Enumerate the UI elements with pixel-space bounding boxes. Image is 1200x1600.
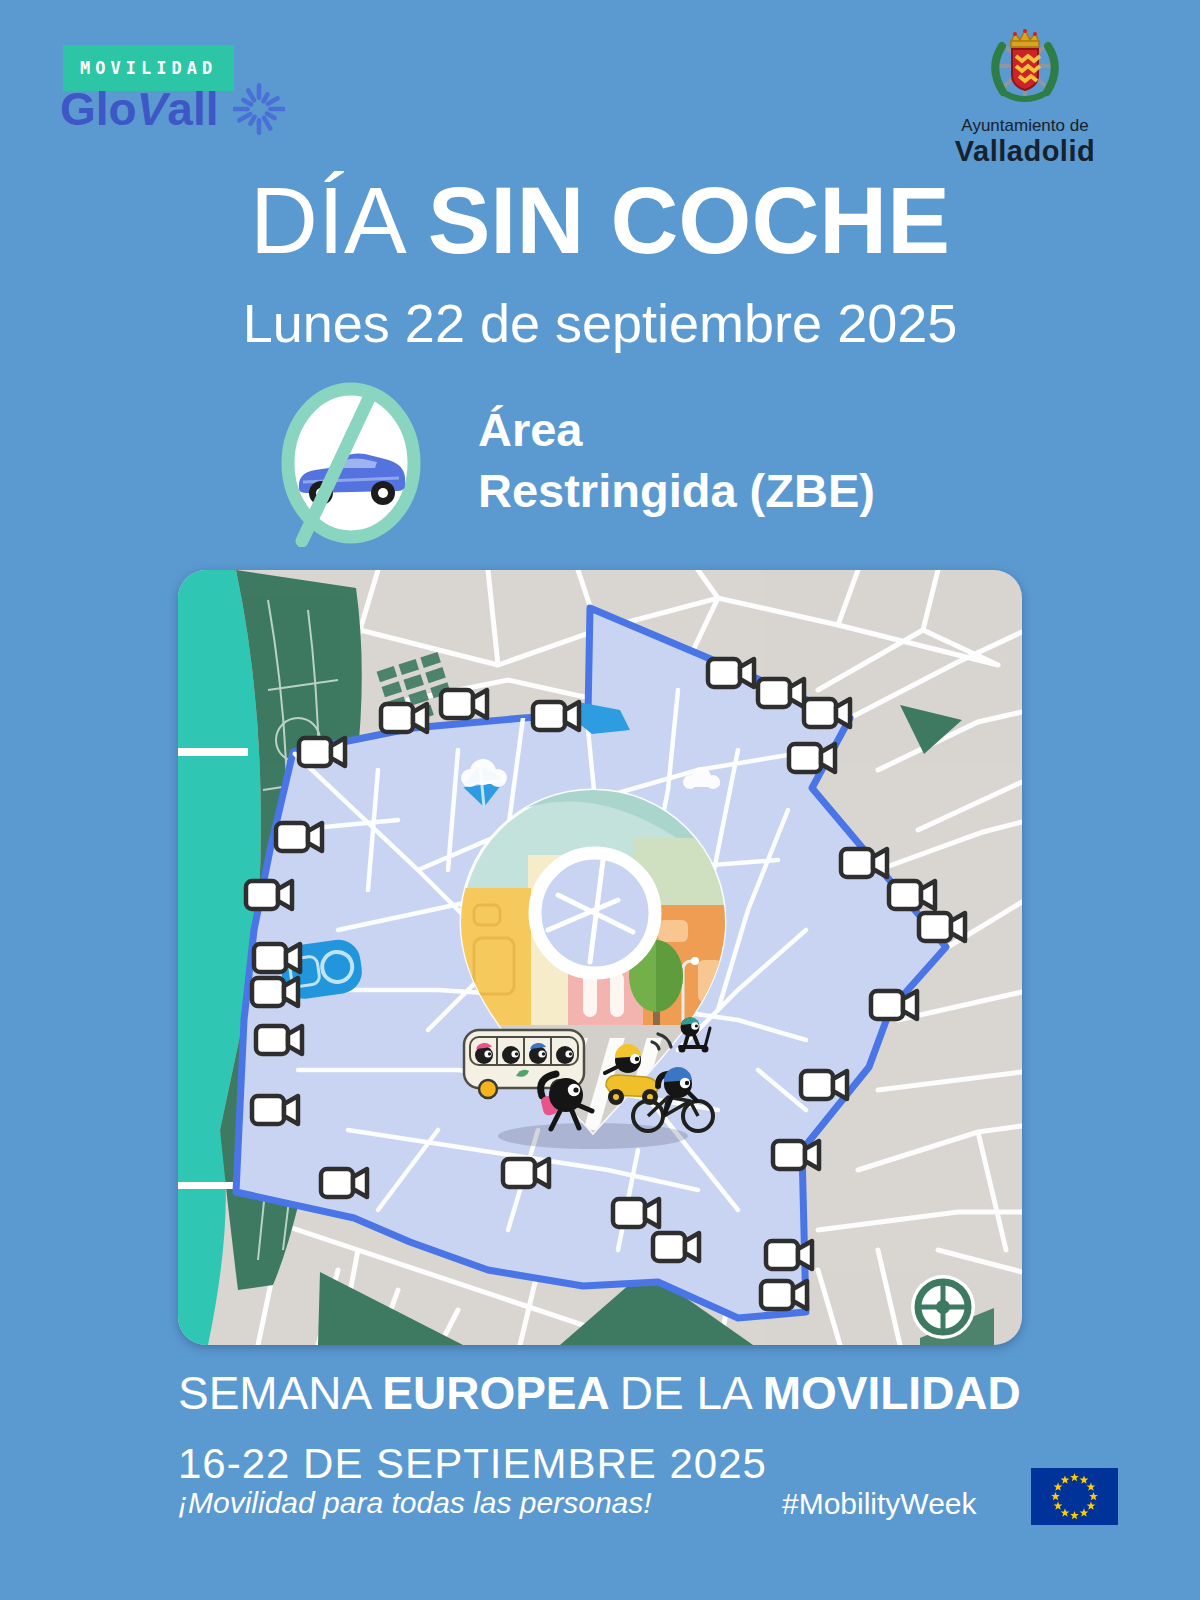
org-name-line2: Valladolid: [925, 135, 1125, 168]
no-car-icon: [279, 381, 423, 551]
hashtag: #MobilityWeek: [782, 1487, 977, 1521]
video-camera-icon: [801, 1071, 847, 1099]
video-camera-icon: [441, 690, 487, 718]
video-camera-icon: [613, 1199, 659, 1227]
glovall-logo: GloVall: [60, 82, 285, 136]
video-camera-icon: [299, 738, 345, 766]
bridge: [178, 1182, 242, 1189]
video-camera-icon: [766, 1241, 812, 1269]
valladolid-logo: Ayuntamiento de Valladolid: [925, 26, 1125, 168]
video-camera-icon: [276, 823, 322, 851]
glovall-wordmark: GloVall: [60, 82, 219, 136]
mobility-week-title: SEMANAEUROPEADE LAMOVILIDAD: [178, 1366, 1031, 1420]
video-camera-icon: [252, 1096, 298, 1124]
video-camera-icon: [653, 1233, 699, 1261]
video-camera-icon: [889, 881, 935, 909]
pin-hole: [535, 853, 655, 973]
video-camera-icon: [252, 978, 298, 1006]
org-name-line1: Ayuntamiento de: [925, 116, 1125, 136]
video-camera-icon: [758, 679, 804, 707]
page-title: DÍA SIN COCHE: [0, 172, 1200, 271]
video-camera-icon: [871, 991, 917, 1019]
video-camera-icon: [773, 1141, 819, 1169]
mobility-week-tagline: ¡Movilidad para todas las personas!: [178, 1486, 652, 1520]
video-camera-icon: [246, 881, 292, 909]
valladolid-coat-of-arms: [986, 26, 1064, 108]
video-camera-icon: [381, 704, 427, 732]
city-map: [178, 570, 1022, 1345]
restricted-area-label: Área Restringida (ZBE): [478, 399, 875, 521]
video-camera-icon: [804, 699, 850, 727]
bridge: [178, 748, 248, 756]
zbe-map: [178, 570, 1022, 1345]
mobility-week-dates: 16-22 DE SEPTIEMBRE 2025: [178, 1440, 767, 1488]
video-camera-icon: [533, 702, 579, 730]
video-camera-icon: [919, 913, 965, 941]
event-date: Lunes 22 de septiembre 2025: [0, 292, 1200, 354]
video-camera-icon: [256, 1026, 302, 1054]
video-camera-icon: [841, 849, 887, 877]
starburst-icon: [233, 83, 285, 135]
poster: MOVILIDAD GloVall: [0, 0, 1200, 1600]
video-camera-icon: [789, 744, 835, 772]
video-camera-icon: [761, 1281, 807, 1309]
video-camera-icon: [254, 944, 300, 972]
video-camera-icon: [708, 659, 754, 687]
video-camera-icon: [503, 1159, 549, 1187]
video-camera-icon: [321, 1169, 367, 1197]
roundabout: [911, 1275, 975, 1339]
eu-flag-icon: [1031, 1468, 1118, 1529]
